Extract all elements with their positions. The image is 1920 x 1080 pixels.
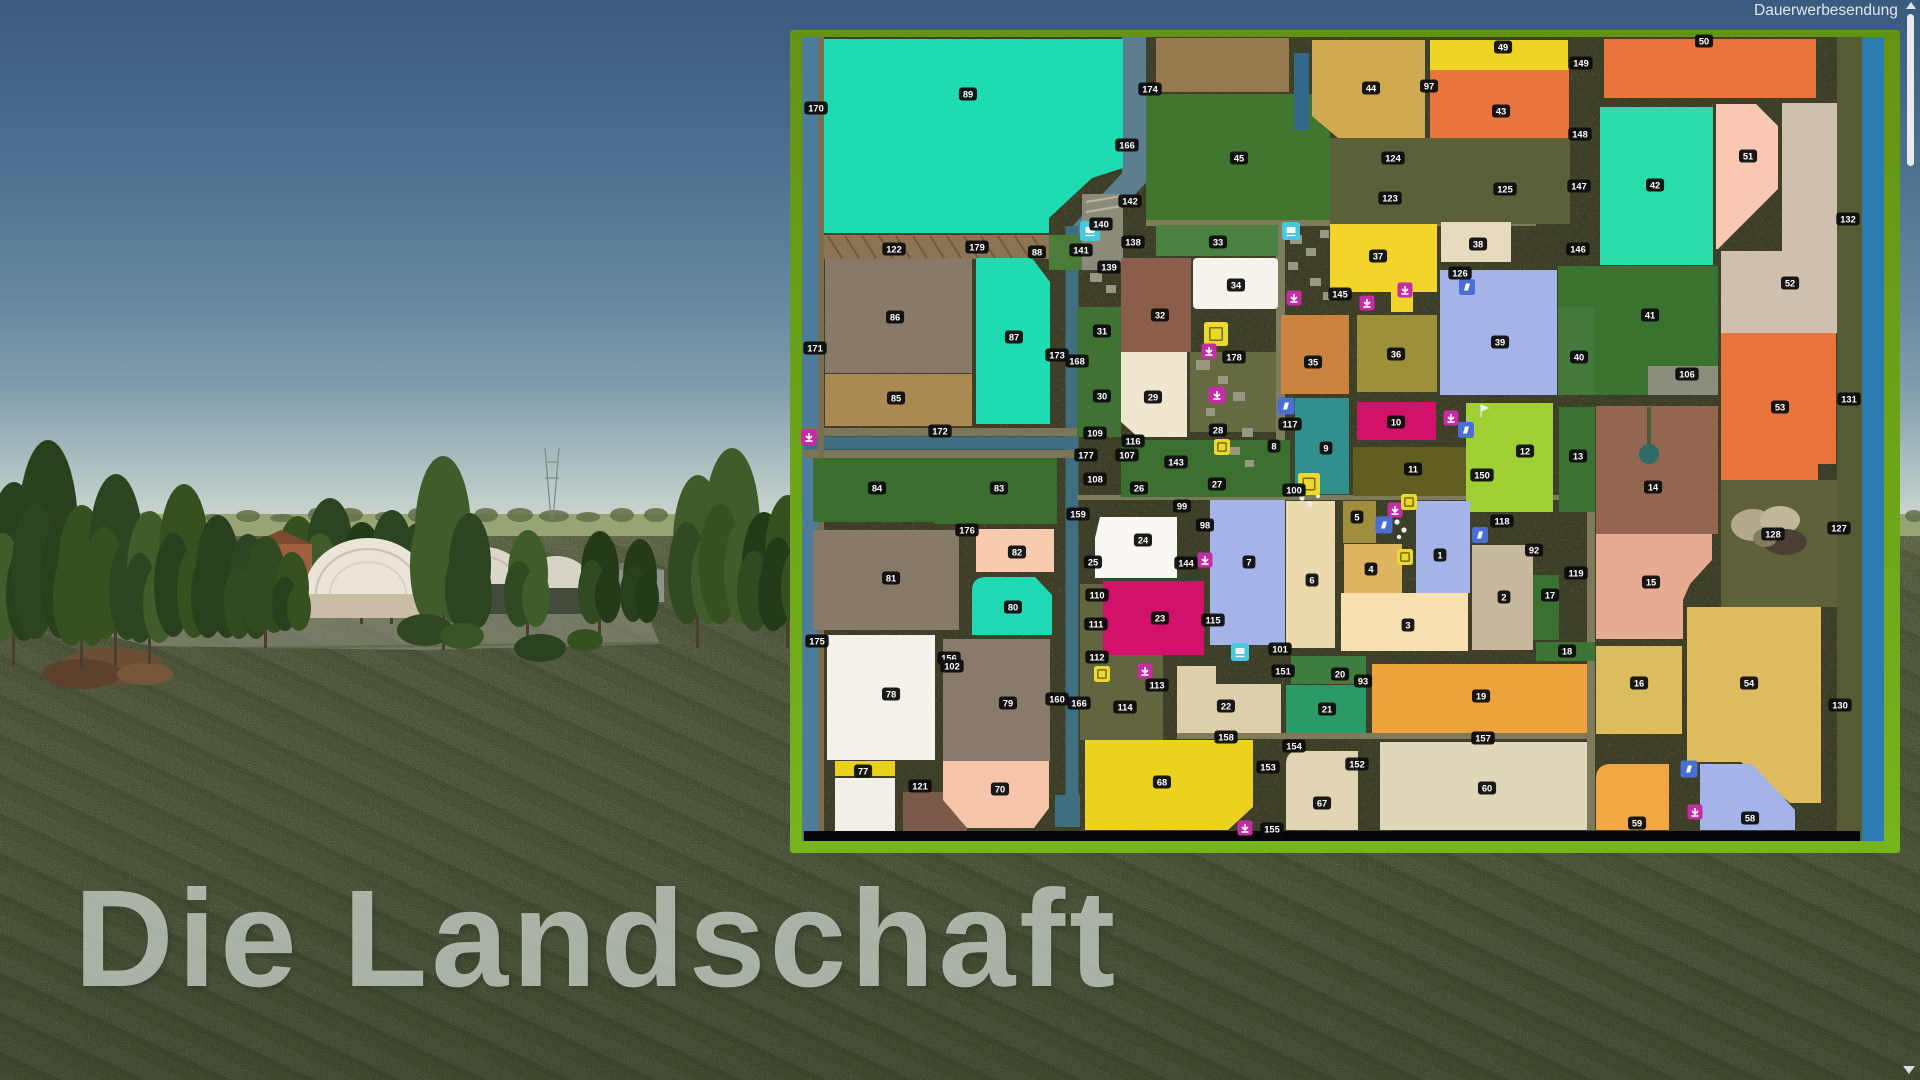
svg-text:139: 139: [1101, 262, 1117, 272]
svg-text:30: 30: [1097, 391, 1107, 401]
svg-text:42: 42: [1650, 180, 1660, 190]
svg-text:98: 98: [1200, 520, 1210, 530]
svg-text:45: 45: [1234, 153, 1244, 163]
svg-text:4: 4: [1368, 564, 1374, 574]
svg-text:117: 117: [1283, 419, 1298, 429]
svg-text:32: 32: [1155, 310, 1165, 320]
svg-text:93: 93: [1358, 676, 1368, 686]
svg-text:107: 107: [1119, 450, 1135, 460]
svg-text:7: 7: [1246, 557, 1251, 567]
svg-text:3: 3: [1405, 620, 1410, 630]
svg-text:174: 174: [1142, 84, 1158, 94]
svg-text:130: 130: [1832, 700, 1848, 710]
svg-text:17: 17: [1545, 590, 1555, 600]
svg-text:178: 178: [1226, 352, 1242, 362]
svg-text:110: 110: [1090, 590, 1105, 600]
svg-text:146: 146: [1570, 244, 1586, 254]
svg-text:158: 158: [1218, 732, 1234, 742]
svg-text:150: 150: [1474, 470, 1490, 480]
svg-text:154: 154: [1286, 741, 1302, 751]
svg-text:140: 140: [1093, 219, 1109, 229]
svg-text:67: 67: [1317, 798, 1327, 808]
svg-text:172: 172: [932, 426, 948, 436]
svg-text:15: 15: [1646, 577, 1656, 587]
svg-text:33: 33: [1213, 237, 1223, 247]
svg-text:11: 11: [1408, 464, 1418, 474]
svg-text:41: 41: [1645, 310, 1655, 320]
svg-text:9: 9: [1323, 443, 1328, 453]
svg-text:59: 59: [1632, 818, 1642, 828]
svg-text:51: 51: [1743, 151, 1753, 161]
svg-text:31: 31: [1097, 326, 1107, 336]
svg-text:171: 171: [807, 343, 823, 353]
svg-text:14: 14: [1648, 482, 1659, 492]
svg-text:84: 84: [872, 483, 883, 493]
svg-text:126: 126: [1452, 268, 1468, 278]
svg-text:155: 155: [1264, 824, 1280, 834]
svg-text:58: 58: [1745, 813, 1755, 823]
svg-text:118: 118: [1495, 516, 1510, 526]
svg-text:125: 125: [1497, 184, 1513, 194]
svg-text:68: 68: [1157, 777, 1167, 787]
svg-text:54: 54: [1744, 678, 1755, 688]
svg-text:44: 44: [1366, 83, 1377, 93]
svg-text:82: 82: [1012, 547, 1022, 557]
svg-text:20: 20: [1335, 669, 1345, 679]
svg-text:145: 145: [1332, 289, 1348, 299]
svg-text:25: 25: [1088, 557, 1098, 567]
svg-text:115: 115: [1206, 615, 1221, 625]
svg-text:83: 83: [994, 483, 1004, 493]
svg-text:50: 50: [1699, 36, 1709, 46]
svg-text:121: 121: [912, 781, 928, 791]
svg-text:29: 29: [1148, 392, 1158, 402]
svg-text:43: 43: [1496, 106, 1506, 116]
svg-text:119: 119: [1569, 568, 1584, 578]
svg-text:52: 52: [1785, 278, 1795, 288]
svg-text:124: 124: [1385, 153, 1401, 163]
svg-text:128: 128: [1765, 529, 1781, 539]
svg-text:142: 142: [1122, 196, 1138, 206]
svg-text:132: 132: [1840, 214, 1856, 224]
svg-text:37: 37: [1373, 251, 1383, 261]
svg-text:108: 108: [1087, 474, 1103, 484]
svg-text:86: 86: [890, 312, 900, 322]
svg-text:102: 102: [944, 661, 960, 671]
svg-text:168: 168: [1069, 356, 1085, 366]
svg-text:112: 112: [1090, 652, 1105, 662]
svg-text:160: 160: [1049, 694, 1065, 704]
svg-text:175: 175: [809, 636, 825, 646]
svg-text:92: 92: [1529, 545, 1539, 555]
svg-text:70: 70: [995, 784, 1005, 794]
svg-text:141: 141: [1073, 245, 1089, 255]
svg-text:60: 60: [1482, 783, 1492, 793]
svg-text:101: 101: [1272, 644, 1288, 654]
svg-text:99: 99: [1177, 501, 1187, 511]
svg-text:97: 97: [1424, 81, 1434, 91]
svg-text:1: 1: [1437, 550, 1442, 560]
svg-text:77: 77: [858, 766, 868, 776]
svg-text:176: 176: [959, 525, 975, 535]
svg-text:28: 28: [1213, 425, 1223, 435]
svg-text:131: 131: [1841, 394, 1857, 404]
svg-text:36: 36: [1391, 349, 1401, 359]
svg-text:166: 166: [1071, 698, 1087, 708]
svg-text:157: 157: [1475, 733, 1491, 743]
svg-text:34: 34: [1231, 280, 1242, 290]
svg-text:13: 13: [1573, 451, 1583, 461]
svg-text:106: 106: [1679, 369, 1695, 379]
svg-text:138: 138: [1125, 237, 1141, 247]
svg-text:177: 177: [1078, 450, 1094, 460]
svg-text:87: 87: [1009, 332, 1019, 342]
svg-text:151: 151: [1275, 666, 1291, 676]
svg-text:89: 89: [963, 89, 973, 99]
svg-text:149: 149: [1573, 58, 1589, 68]
svg-text:12: 12: [1520, 446, 1530, 456]
svg-text:16: 16: [1634, 678, 1644, 688]
svg-text:26: 26: [1134, 483, 1144, 493]
svg-text:2: 2: [1501, 592, 1506, 602]
svg-text:21: 21: [1322, 704, 1332, 714]
svg-text:153: 153: [1260, 762, 1276, 772]
svg-text:100: 100: [1286, 485, 1302, 495]
svg-text:53: 53: [1775, 402, 1785, 412]
svg-text:24: 24: [1138, 535, 1149, 545]
svg-text:38: 38: [1473, 239, 1483, 249]
svg-text:114: 114: [1118, 702, 1134, 712]
svg-text:39: 39: [1495, 337, 1505, 347]
svg-text:81: 81: [886, 573, 896, 583]
svg-text:147: 147: [1571, 181, 1587, 191]
svg-text:123: 123: [1382, 193, 1398, 203]
svg-text:88: 88: [1032, 247, 1042, 257]
svg-text:78: 78: [886, 689, 896, 699]
svg-text:80: 80: [1008, 602, 1018, 612]
svg-text:6: 6: [1309, 575, 1314, 585]
svg-text:111: 111: [1089, 619, 1104, 629]
svg-text:166: 166: [1119, 140, 1135, 150]
svg-text:143: 143: [1168, 457, 1184, 467]
svg-text:127: 127: [1831, 523, 1847, 533]
svg-text:109: 109: [1087, 428, 1103, 438]
svg-text:113: 113: [1150, 680, 1165, 690]
svg-text:23: 23: [1155, 613, 1165, 623]
svg-text:35: 35: [1308, 357, 1318, 367]
svg-text:179: 179: [969, 242, 985, 252]
svg-text:159: 159: [1070, 509, 1086, 519]
svg-text:5: 5: [1354, 512, 1359, 522]
svg-text:10: 10: [1391, 417, 1401, 427]
svg-text:144: 144: [1178, 558, 1194, 568]
svg-text:8: 8: [1271, 441, 1276, 451]
svg-text:122: 122: [886, 244, 902, 254]
svg-text:22: 22: [1221, 701, 1231, 711]
svg-text:85: 85: [891, 393, 901, 403]
svg-text:27: 27: [1212, 479, 1222, 489]
svg-text:173: 173: [1049, 350, 1065, 360]
svg-text:170: 170: [808, 103, 824, 113]
svg-text:152: 152: [1349, 759, 1365, 769]
svg-text:40: 40: [1574, 352, 1584, 362]
svg-text:148: 148: [1572, 129, 1588, 139]
svg-text:116: 116: [1126, 436, 1141, 446]
svg-text:49: 49: [1498, 42, 1508, 52]
svg-text:19: 19: [1476, 691, 1486, 701]
svg-text:79: 79: [1003, 698, 1013, 708]
svg-text:18: 18: [1562, 646, 1572, 656]
